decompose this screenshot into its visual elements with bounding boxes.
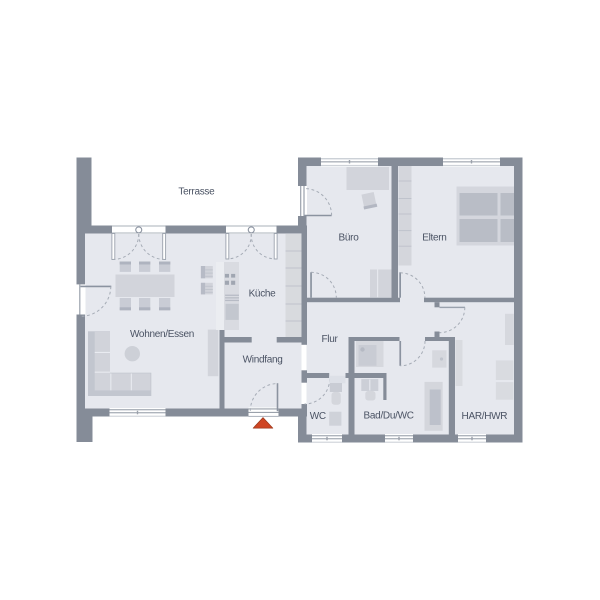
svg-text:HAR/HWR: HAR/HWR [462,411,508,422]
svg-text:Küche: Küche [249,288,277,299]
svg-text:Eltern: Eltern [422,233,446,244]
svg-text:Bad/Du/WC: Bad/Du/WC [364,411,414,422]
svg-text:Flur: Flur [321,334,338,345]
svg-text:Büro: Büro [339,232,360,243]
svg-text:Terrasse: Terrasse [178,187,215,198]
svg-text:Windfang: Windfang [243,355,283,366]
svg-text:WC: WC [310,411,326,422]
svg-text:Wohnen/Essen: Wohnen/Essen [130,329,194,340]
